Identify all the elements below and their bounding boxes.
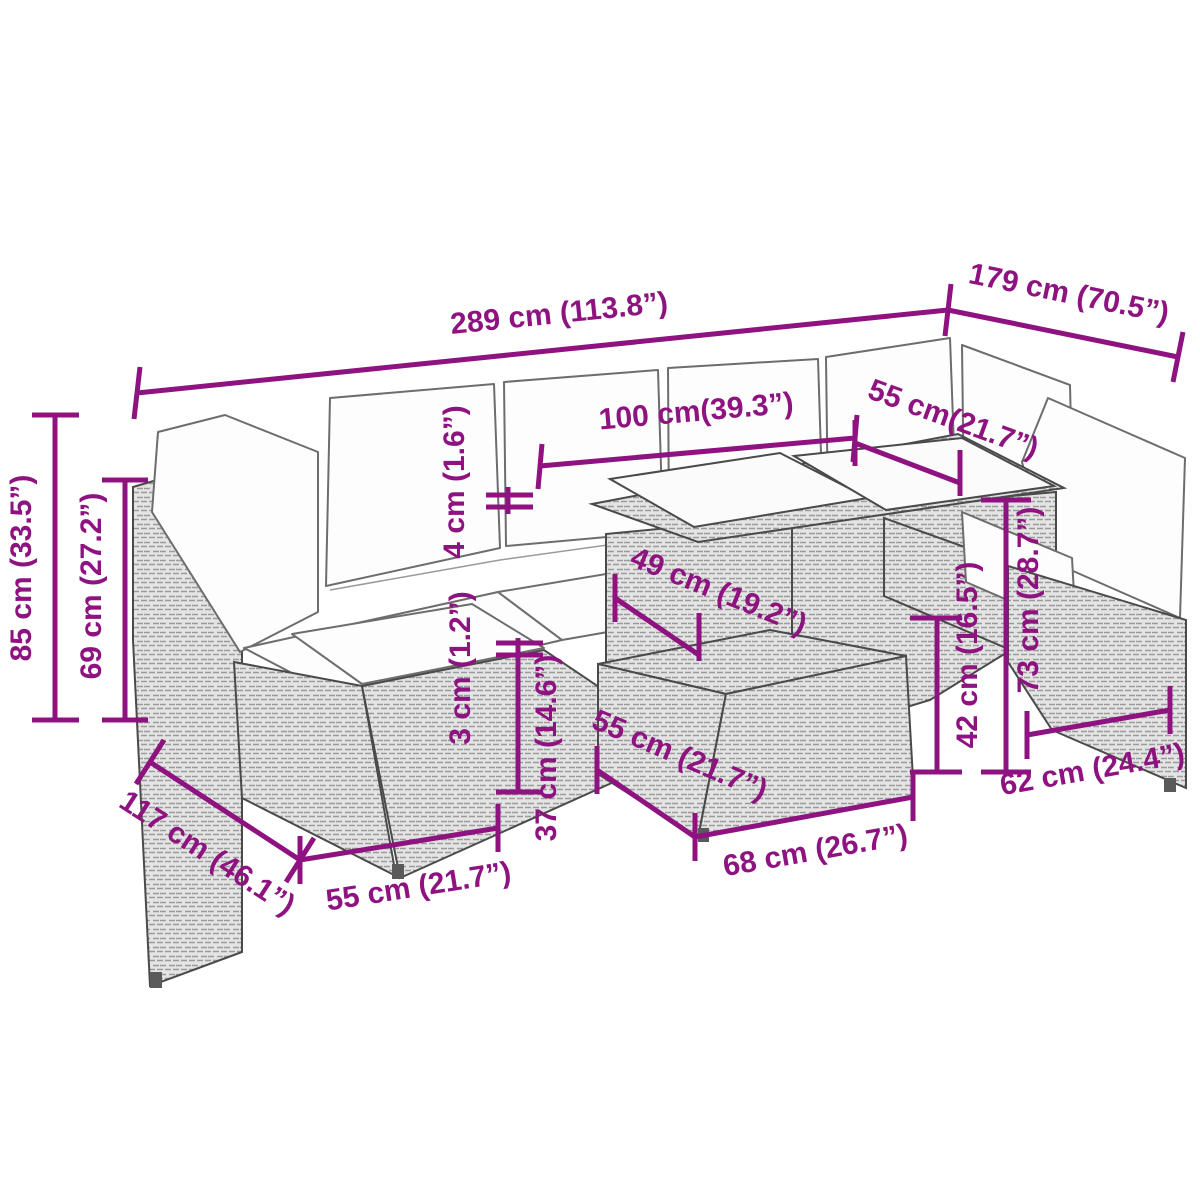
dim-stool-height-label: 37 cm (14.6”) bbox=[530, 655, 563, 842]
sofa-foot-4 bbox=[1164, 778, 1176, 792]
dim-cushion-thickness-label: 4 cm (1.6”) bbox=[438, 405, 471, 558]
dim-backrest-height-label: 73 cm (28.7”) bbox=[1012, 507, 1045, 694]
dimension-diagram: 289 cm (113.8”) 179 cm (70.5”) 85 cm (33… bbox=[0, 0, 1200, 1200]
dim-total-height-label: 85 cm (33.5”) bbox=[5, 475, 38, 662]
dim-armrest-height-label: 69 cm (27.2”) bbox=[75, 493, 108, 680]
dim-pad-thickness-label: 3 cm (1.2”) bbox=[444, 591, 477, 744]
dim-stool-height: 37 cm (14.6”) bbox=[530, 655, 563, 842]
sofa-foot-1 bbox=[150, 972, 162, 988]
dim-seat-height-label: 42 cm (16.5”) bbox=[951, 562, 984, 749]
